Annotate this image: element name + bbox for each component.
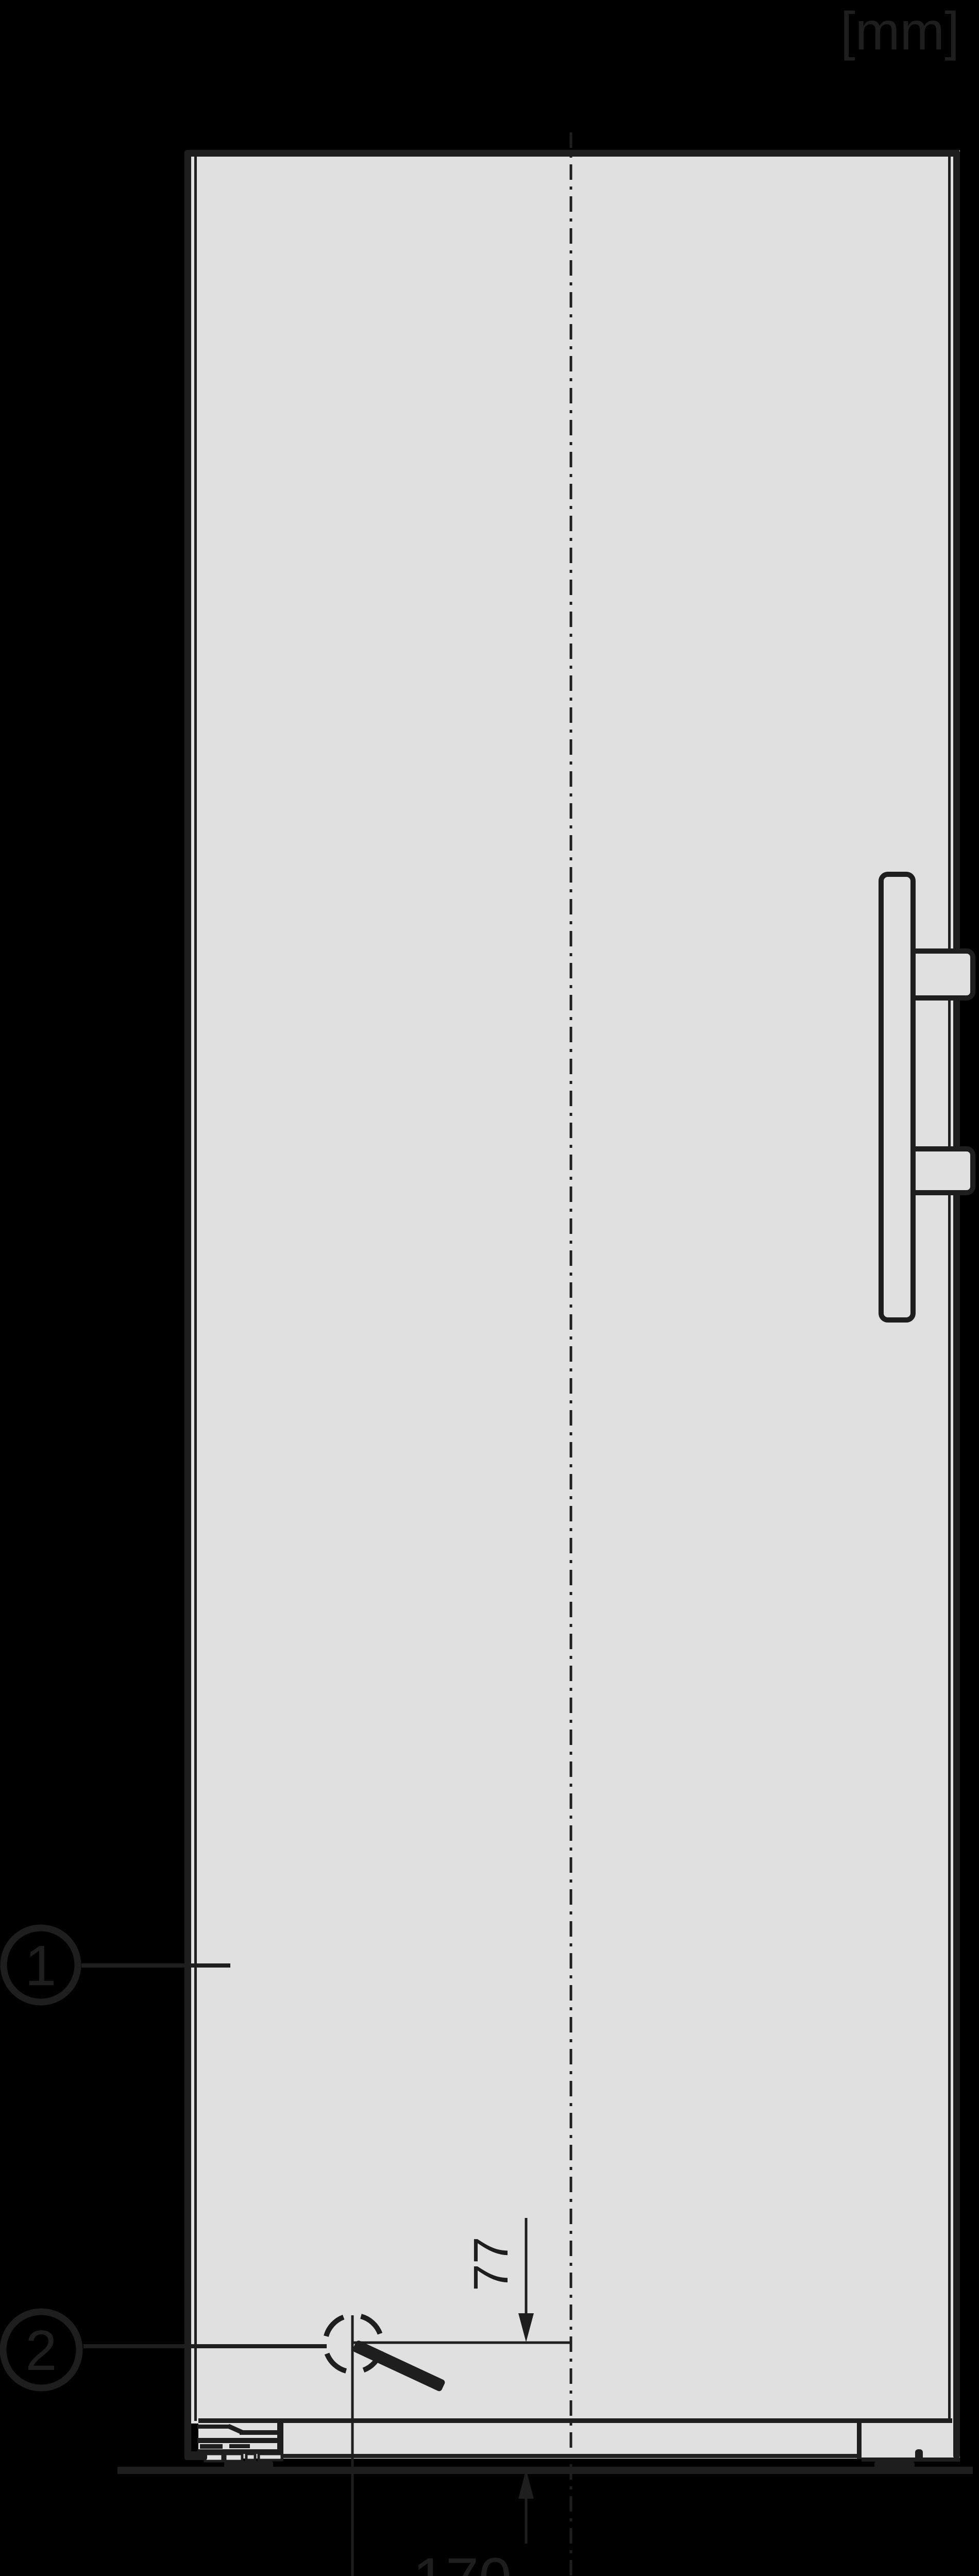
callout-1-badge: 1 — [4, 1928, 78, 2002]
front-door-gap-line — [194, 156, 197, 2421]
door-bottom-cap — [184, 2451, 207, 2460]
dimension-170-label: 170 — [413, 2546, 512, 2576]
rear-panel-line — [948, 156, 951, 2421]
plinth-bottom-line-left — [283, 2454, 857, 2458]
callout-1-number: 1 — [25, 1934, 56, 1997]
callout-2-badge: 2 — [3, 2312, 79, 2388]
callout-2-number: 2 — [25, 2319, 57, 2382]
cabinet-front-edge — [184, 150, 191, 2456]
cabinet-top-edge — [184, 150, 960, 157]
dimension-77-label: 77 — [464, 2236, 518, 2291]
cabinet-bottom-line — [198, 2418, 952, 2423]
wall-spacer-bar — [881, 874, 913, 1320]
floor-line — [117, 2467, 973, 2474]
cabinet-rear-edge — [953, 150, 960, 2459]
technical-drawing-canvas: [mm] — [0, 0, 979, 2576]
appliance-side-view-diagram: [mm] — [0, 0, 979, 2576]
dimension-170: 170 — [355, 2546, 569, 2576]
rear-foot-bracket — [857, 2421, 862, 2459]
unit-label: [mm] — [840, 2, 959, 61]
rear-bracket-tip — [915, 2449, 923, 2461]
callout-2-leader — [83, 2344, 327, 2348]
cabinet-body — [185, 150, 960, 2424]
callout-1-leader — [81, 1963, 230, 1968]
plinth-body — [198, 2421, 960, 2459]
